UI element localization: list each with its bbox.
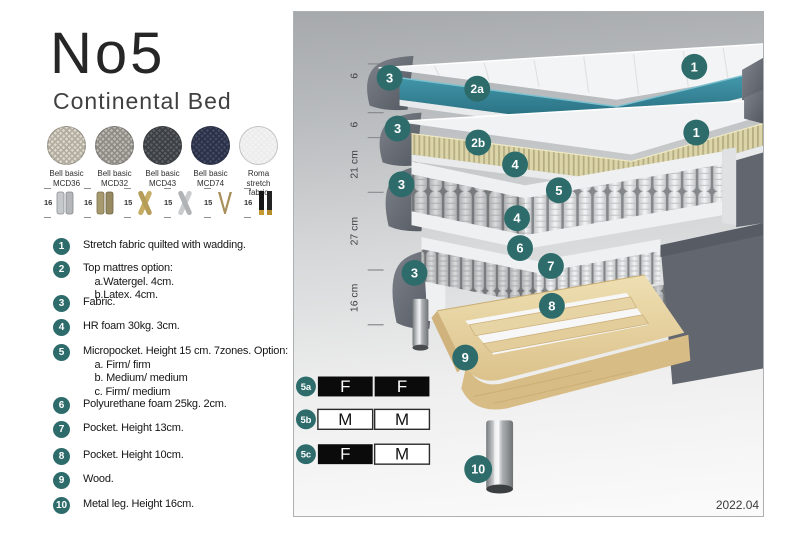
callout: 1 xyxy=(681,54,707,80)
callout: 3 xyxy=(385,116,411,142)
legend-item: 4 HR foam 30kg. 3cm. xyxy=(53,319,180,336)
legend-number-badge: 7 xyxy=(53,421,70,438)
callout: 4 xyxy=(502,151,528,177)
legend-item: 10 Metal leg. Height 16cm. xyxy=(53,497,194,514)
metal-leg-back xyxy=(412,299,428,351)
leg-height: 16 xyxy=(44,188,52,218)
leg-option: 16 xyxy=(244,186,280,220)
dimension-label: 6 xyxy=(350,122,361,128)
svg-text:4: 4 xyxy=(511,157,519,172)
svg-text:2a: 2a xyxy=(471,82,485,96)
legend-text: Pocket. Height 13cm. xyxy=(83,421,184,436)
legend-number-badge: 8 xyxy=(53,448,70,465)
legend-number-badge: 2 xyxy=(53,261,70,278)
firmness-cell: M xyxy=(375,409,430,429)
leg-option: 16 xyxy=(44,186,80,220)
legend-text: Stretch fabric quilted with wadding. xyxy=(83,238,246,253)
legend-text: Metal leg. Height 16cm. xyxy=(83,497,194,512)
firmness-cell: F xyxy=(318,377,373,397)
leg-icon-cylinder-silver xyxy=(54,189,76,217)
leg-icon-cross-gold xyxy=(134,189,156,217)
legend-text: Wood. xyxy=(83,472,114,487)
leg-option: 16 xyxy=(84,186,120,220)
svg-text:8: 8 xyxy=(548,298,555,313)
leg-option: 15 xyxy=(204,186,240,220)
leg-icon-hairpin-metal xyxy=(214,189,236,217)
legend-number-badge: 3 xyxy=(53,295,70,312)
firmness-table: 5a F F 5b M M xyxy=(296,377,429,465)
callout: 10 xyxy=(464,455,492,483)
legend-item: 3 Fabric. xyxy=(53,295,115,312)
page-title: No5 xyxy=(50,20,165,87)
firmness-row: 5b M M xyxy=(296,409,429,429)
leg-option: 15 xyxy=(164,186,200,220)
callout: 9 xyxy=(452,345,478,371)
leg-height: 16 xyxy=(84,188,92,218)
fabric-swatch-circle xyxy=(143,126,182,165)
svg-text:9: 9 xyxy=(462,350,469,365)
leg-option: 15 xyxy=(124,186,160,220)
svg-text:3: 3 xyxy=(386,70,393,85)
legend-text: Polyurethane foam 25kg. 2cm. xyxy=(83,397,227,412)
svg-text:5: 5 xyxy=(555,183,562,198)
firmness-cell: M xyxy=(375,444,430,464)
callout: 2a xyxy=(464,76,490,102)
svg-text:F: F xyxy=(397,377,407,396)
legend-number-badge: 5 xyxy=(53,344,70,361)
svg-text:1: 1 xyxy=(693,125,700,140)
dimension-label: 16 cm xyxy=(350,284,361,312)
callout: 1 xyxy=(683,120,709,146)
legend-number-badge: 6 xyxy=(53,397,70,414)
callout: 5 xyxy=(546,177,572,203)
svg-text:2b: 2b xyxy=(471,136,485,150)
fabric-swatch-circle xyxy=(95,126,134,165)
svg-text:6: 6 xyxy=(516,241,523,256)
leg-height: 15 xyxy=(164,188,172,218)
svg-text:M: M xyxy=(338,410,352,429)
fabric-swatch-circle xyxy=(47,126,86,165)
fabric-swatch-circle xyxy=(191,126,230,165)
svg-text:1: 1 xyxy=(691,59,698,74)
svg-text:M: M xyxy=(395,445,409,464)
legend-item: 7 Pocket. Height 13cm. xyxy=(53,421,184,438)
wood-frame xyxy=(431,275,690,410)
leg-height: 16 xyxy=(244,188,252,218)
callout: 3 xyxy=(389,171,415,197)
legend-number-badge: 4 xyxy=(53,319,70,336)
legend-number-badge: 10 xyxy=(53,497,70,514)
dimension-label: 21 cm xyxy=(350,150,361,178)
firmness-row: 5c F M xyxy=(296,444,429,464)
svg-text:3: 3 xyxy=(411,265,418,280)
leg-options-row: 16 16 15 15 xyxy=(44,186,280,220)
leg-icon-cylinder-bronze xyxy=(94,189,116,217)
legend-text: Pocket. Height 10cm. xyxy=(83,448,184,463)
legend-number-badge: 9 xyxy=(53,472,70,489)
fabric-swatch-circle xyxy=(239,126,278,165)
leg-icon-black-gold xyxy=(254,189,276,217)
dimension-label: 27 cm xyxy=(350,217,361,245)
svg-text:M: M xyxy=(395,410,409,429)
legend-item: 5 Micropocket. Height 15 cm. 7zones. Opt… xyxy=(53,344,288,399)
legend-text: Micropocket. Height 15 cm. 7zones. Optio… xyxy=(83,344,288,399)
metal-leg-front xyxy=(486,420,513,493)
svg-text:F: F xyxy=(340,377,350,396)
dimension-label: 6 xyxy=(350,73,361,79)
firmness-row-id: 5c xyxy=(301,450,312,461)
firmness-row-id: 5a xyxy=(301,382,312,393)
callout: 3 xyxy=(402,260,428,286)
leg-height: 15 xyxy=(204,188,212,218)
bed-cutaway-panel: 6 6 21 cm 27 cm 16 cm xyxy=(293,11,764,517)
firmness-cell: F xyxy=(375,377,430,397)
legend-item: 1 Stretch fabric quilted with wadding. xyxy=(53,238,246,255)
legend-number-badge: 1 xyxy=(53,238,70,255)
leg-height: 15 xyxy=(124,188,132,218)
svg-text:F: F xyxy=(340,445,350,464)
svg-text:7: 7 xyxy=(547,258,554,273)
firmness-cell: M xyxy=(318,409,373,429)
callout: 4 xyxy=(504,205,530,231)
firmness-cell: F xyxy=(318,444,373,464)
legend-text: Fabric. xyxy=(83,295,115,310)
legend-item: 6 Polyurethane foam 25kg. 2cm. xyxy=(53,397,227,414)
callout: 6 xyxy=(507,235,533,261)
legend-text: HR foam 30kg. 3cm. xyxy=(83,319,180,334)
firmness-row: 5a F F xyxy=(296,377,429,397)
svg-text:10: 10 xyxy=(471,463,485,477)
bed-cutaway-illustration: 6 6 21 cm 27 cm 16 cm xyxy=(294,12,763,516)
callout: 8 xyxy=(539,293,565,319)
svg-text:4: 4 xyxy=(513,211,521,226)
version-label: 2022.04 xyxy=(716,498,760,512)
callout: 3 xyxy=(377,65,403,91)
product-sheet: No5 Continental Bed Bell basic MCD36 Bel… xyxy=(0,0,800,533)
svg-text:3: 3 xyxy=(394,121,401,136)
leg-icon-cross-silver xyxy=(174,189,196,217)
callout: 7 xyxy=(538,253,564,279)
callout: 2b xyxy=(465,130,491,156)
page-subtitle: Continental Bed xyxy=(53,88,232,115)
legend-item: 8 Pocket. Height 10cm. xyxy=(53,448,184,465)
legend-item: 9 Wood. xyxy=(53,472,114,489)
svg-text:3: 3 xyxy=(398,177,405,192)
firmness-row-id: 5b xyxy=(300,415,311,426)
